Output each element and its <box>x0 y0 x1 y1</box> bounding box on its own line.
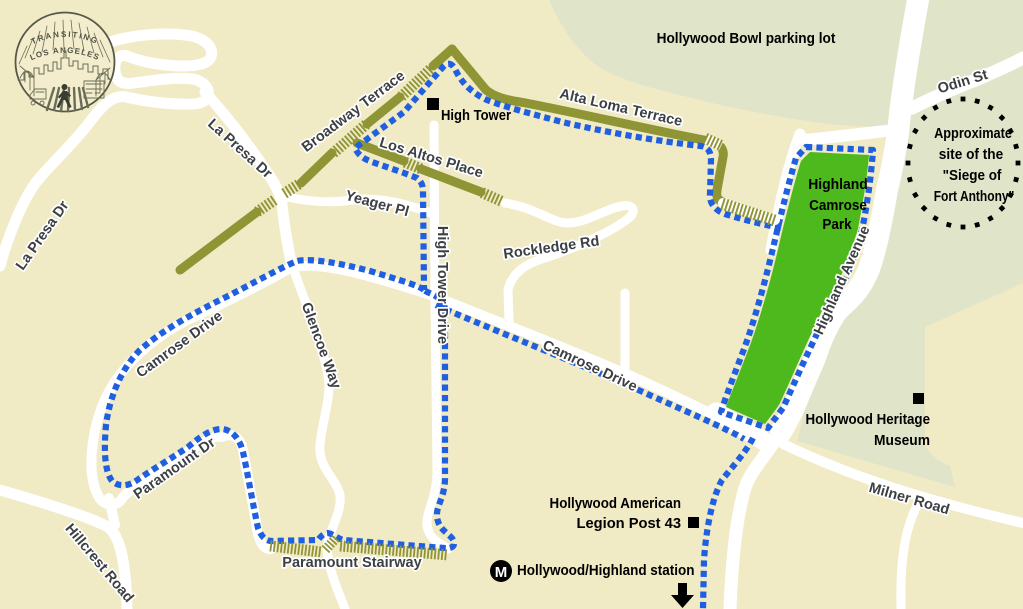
svg-text:Legion Post 43: Legion Post 43 <box>576 516 681 532</box>
svg-text:High Tower Drive: High Tower Drive <box>434 226 450 344</box>
svg-text:Paramount Stairway: Paramount Stairway <box>282 555 421 571</box>
svg-text:site of the: site of the <box>939 146 1003 163</box>
svg-text:Hollywood Bowl parking lot: Hollywood Bowl parking lot <box>657 30 836 47</box>
svg-text:Park: Park <box>822 216 851 233</box>
svg-text:Approximate: Approximate <box>934 124 1012 141</box>
svg-text:"Siege of: "Siege of <box>943 167 1002 184</box>
svg-text:M: M <box>495 564 508 581</box>
svg-text:Museum: Museum <box>874 433 930 450</box>
svg-text:Camrose: Camrose <box>809 197 867 214</box>
svg-text:High Tower: High Tower <box>441 106 512 123</box>
svg-text:Hollywood Heritage: Hollywood Heritage <box>805 411 930 428</box>
svg-text:Hollywood American: Hollywood American <box>550 495 681 512</box>
svg-text:Fort Anthony": Fort Anthony" <box>934 188 1015 205</box>
svg-text:Hollywood/Highland station: Hollywood/Highland station <box>517 562 695 579</box>
svg-text:Highland: Highland <box>808 177 868 194</box>
